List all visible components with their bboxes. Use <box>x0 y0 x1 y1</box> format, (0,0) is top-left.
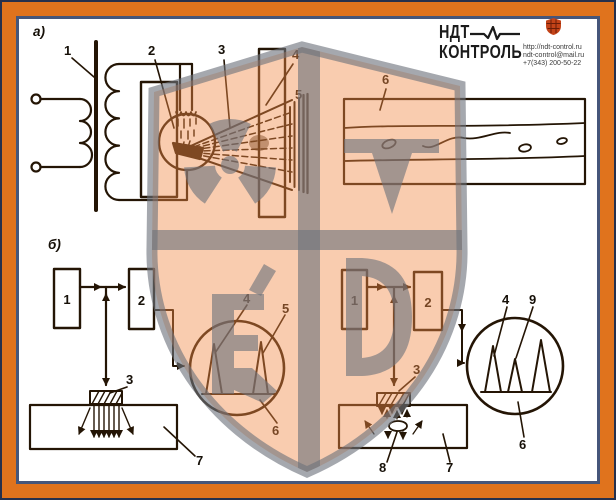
label-br-6: 6 <box>519 437 526 452</box>
pulse-defect <box>508 359 522 392</box>
oscilloscope-right <box>467 318 563 414</box>
scanned-page: а) 1 2 3 4 5 6 б) 1 2 3 4 5 6 7 1 2 3 4 … <box>0 0 616 500</box>
crack-defect <box>423 132 510 147</box>
website-text: http://ndt-control.ru <box>523 44 582 52</box>
section-a-label: а) <box>33 24 46 39</box>
xray-beam <box>184 100 292 190</box>
label-a-4: 4 <box>292 47 300 62</box>
label-a-6: 6 <box>382 72 389 87</box>
weld-test-object <box>344 99 585 184</box>
brand-name-top: НДТ <box>439 22 470 43</box>
label-a-5: 5 <box>295 87 302 102</box>
label-bl-5: 5 <box>282 301 289 316</box>
label-br-9: 9 <box>529 292 536 307</box>
pulse-initial <box>485 346 501 392</box>
label-a-1: 1 <box>64 43 71 58</box>
label-br-8: 8 <box>379 460 386 475</box>
echo-beam-right <box>365 407 422 439</box>
label-bl-4: 4 <box>243 291 251 306</box>
label-br-4: 4 <box>502 292 510 307</box>
pulse-icon <box>469 26 521 42</box>
phone-text: +7(343) 200-50-22 <box>523 60 581 68</box>
transducer-left <box>90 391 122 404</box>
label-bl-3: 3 <box>126 372 133 387</box>
diaphragm <box>259 49 285 217</box>
leader-lines-b-right <box>387 307 533 462</box>
wire-to-scope-right <box>442 310 464 363</box>
pulse-initial <box>206 344 222 394</box>
label-br-3: 3 <box>413 362 420 377</box>
oscilloscope-left <box>190 321 284 415</box>
sound-beam-left <box>79 406 133 437</box>
transformer <box>32 42 120 210</box>
label-bl-1: 1 <box>63 292 70 307</box>
brand-name-bottom: КОНТРОЛЬ <box>439 42 522 63</box>
pore-defect <box>518 143 531 152</box>
pulse-bottom <box>532 340 550 392</box>
figure-drawing: а) 1 2 3 4 5 6 б) 1 2 3 4 5 6 7 1 2 3 4 … <box>2 2 616 500</box>
label-bl-7: 7 <box>196 453 203 468</box>
label-br-7: 7 <box>446 460 453 475</box>
section-b-label: б) <box>48 237 61 252</box>
label-a-3: 3 <box>218 42 225 57</box>
label-br-2: 2 <box>424 295 431 310</box>
label-bl-2: 2 <box>138 293 145 308</box>
pore-defect <box>381 138 397 150</box>
scheme-a-xray <box>32 42 586 217</box>
label-br-1: 1 <box>351 293 358 308</box>
brand-shield-icon <box>546 18 561 35</box>
wire-to-scope-left <box>154 310 184 366</box>
label-a-2: 2 <box>148 43 155 58</box>
pore-defect <box>556 137 567 145</box>
label-bl-6: 6 <box>272 423 279 438</box>
test-object-right <box>339 405 467 448</box>
electron-cloud <box>178 118 196 147</box>
email-text: ndt-control@mail.ru <box>523 52 584 60</box>
film-screen <box>290 94 308 193</box>
internal-defect <box>389 421 407 431</box>
